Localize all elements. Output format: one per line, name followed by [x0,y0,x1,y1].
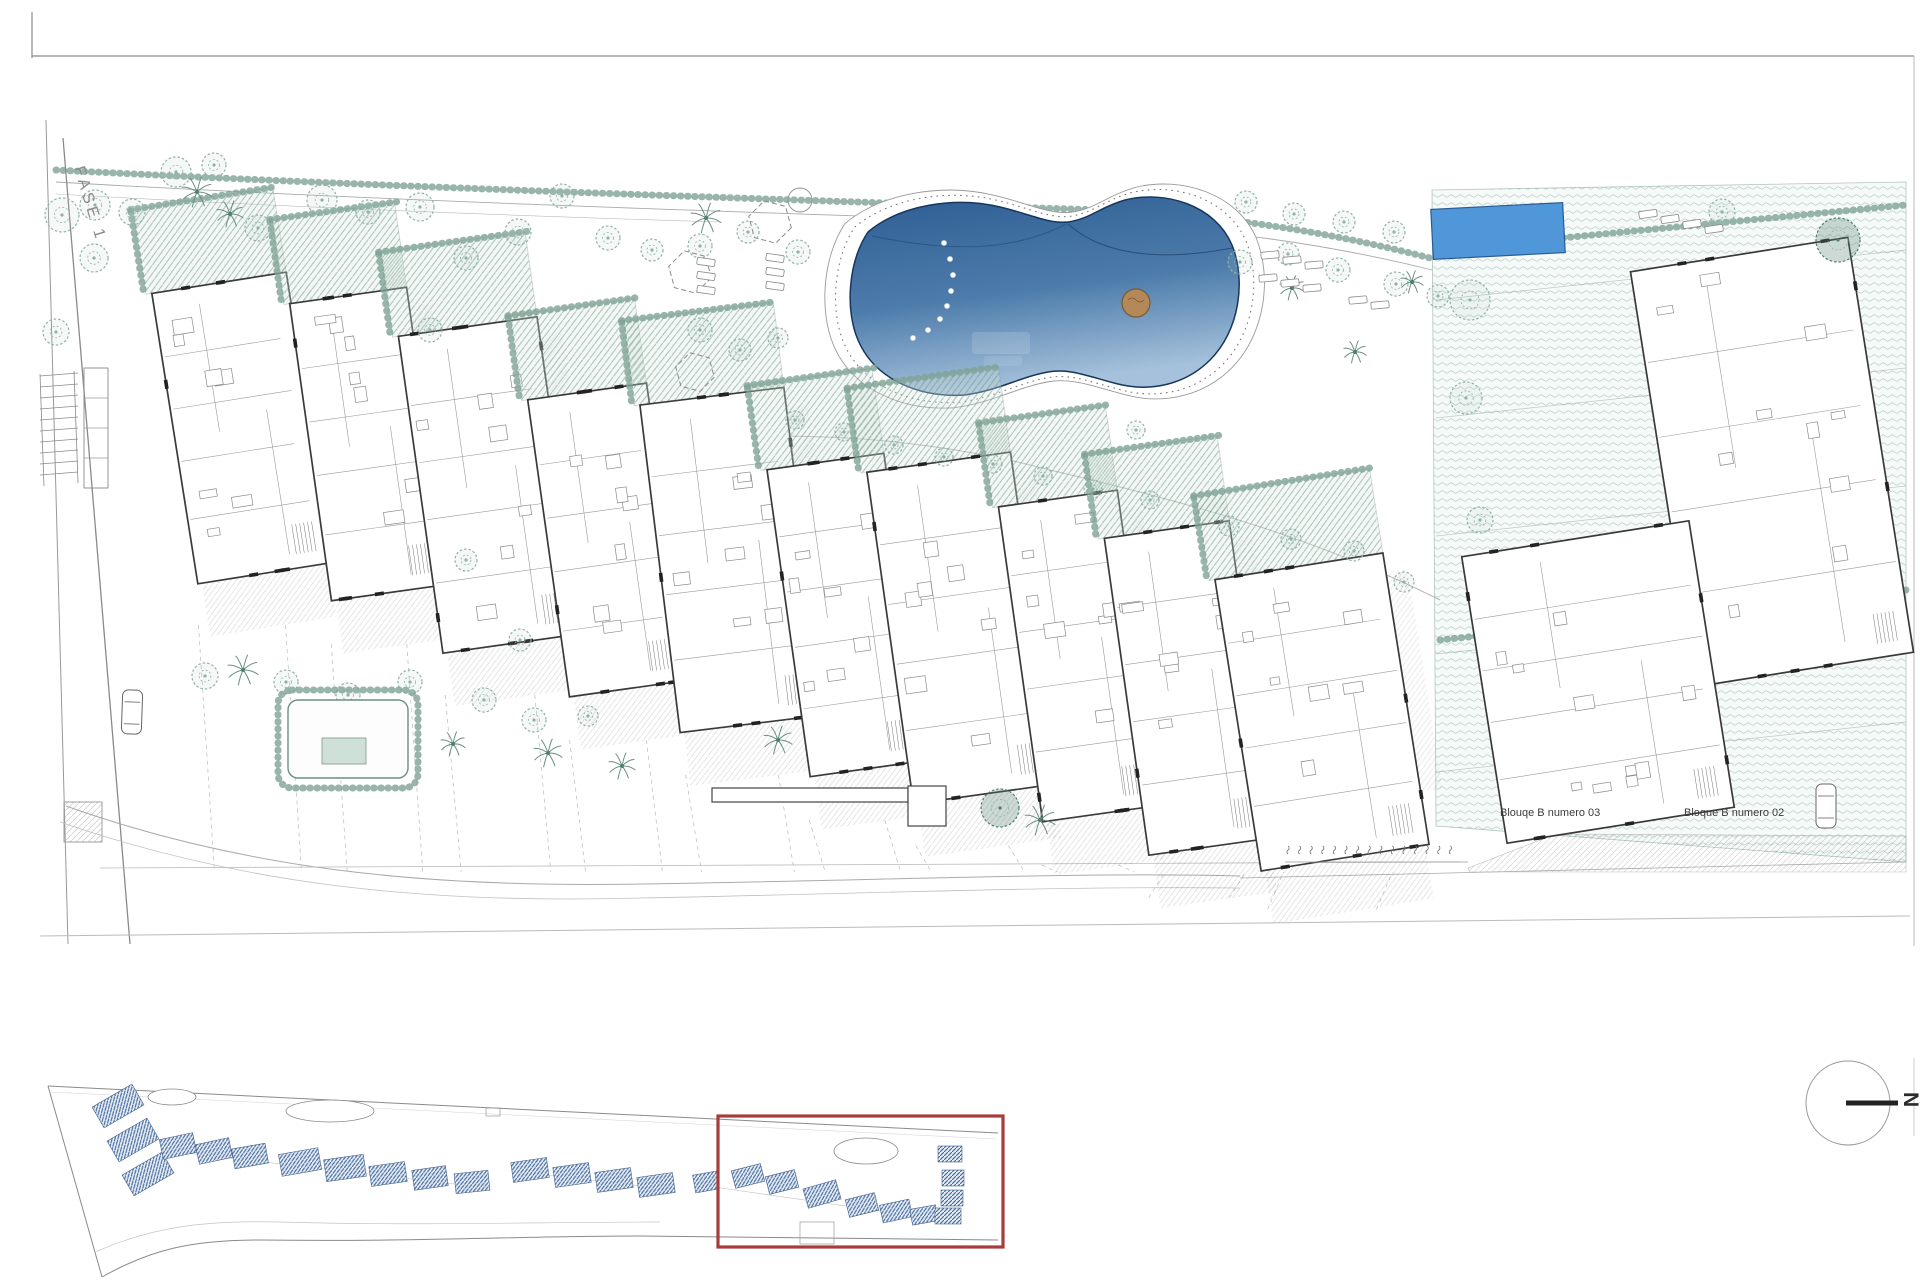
tree-trunk-dot [998,806,1001,809]
car-rear-window [124,724,140,725]
palm-center [241,668,245,672]
keyplan-building-unit [941,1190,963,1206]
sun-lounger [1259,274,1278,283]
stair-step [40,472,78,475]
tree-trunk-dot [418,205,421,208]
furniture-symbol [827,668,846,682]
keyplan-building-unit [803,1180,841,1209]
furniture-symbol [205,369,224,387]
tree-symbol [981,789,1019,827]
tree-symbol [455,549,477,571]
tree-symbol [192,663,218,689]
furniture-symbol [824,587,841,598]
palm-center [546,751,550,755]
palm-center [620,764,624,768]
palm-center [1038,818,1042,822]
tree-symbol [935,448,953,466]
furniture-symbol [795,551,810,560]
palm-symbol [441,732,466,757]
sun-lounger [697,285,716,294]
palm-frond [622,766,629,778]
tree-trunk-dot [842,430,845,433]
tree-symbol [1450,280,1490,320]
tree-trunk-dot [212,163,215,166]
car-windshield [124,702,140,703]
pergola-pavilion [908,786,946,826]
furniture-symbol [172,317,194,335]
keyplan-building-unit [731,1164,764,1189]
tree-trunk-dot [60,213,63,216]
car-body [121,690,143,735]
furniture-symbol [904,676,927,694]
tree-symbol [1235,191,1257,213]
tree-trunk-dot [586,714,589,717]
stair-step [40,450,78,453]
tree-symbol [202,153,226,177]
plot-division-dashed-line [1008,846,1024,873]
tree-symbol [1427,285,1449,307]
palm-symbol [534,739,563,768]
furniture-symbol [733,617,751,627]
palm-center [776,738,780,742]
furniture-symbol [1270,677,1280,686]
pool-island [1122,289,1150,317]
furniture-symbol [416,420,429,431]
tree-symbol [161,157,191,187]
palm-frond [243,663,257,670]
tree-symbol [835,423,853,441]
tree-symbol [1141,491,1159,509]
furniture-symbol [173,334,185,347]
tree-symbol [454,246,478,270]
furniture-symbol [971,733,990,746]
parking-number-tick [1426,846,1428,854]
tree-trunk-dot [1148,498,1151,501]
sun-lounger [1281,279,1300,288]
furniture-symbol [923,541,939,558]
tree-trunk-dot [1238,260,1241,263]
pool-light-dot [950,272,955,277]
furniture-symbol [1308,684,1329,701]
site-plan-drawing: FASE 1 Blouqe B numero 03 Bloque B numer… [0,0,1920,1280]
furniture-symbol [1804,324,1827,341]
pool-water [850,197,1239,395]
furniture-symbol [1512,664,1524,673]
tree-trunk-dot [408,680,411,683]
tree-symbol [578,706,598,726]
tree-trunk-dot [284,680,287,683]
furniture-symbol [1574,695,1595,711]
parking-number-tick [1449,846,1451,854]
tree-trunk-dot [606,236,609,239]
tree-trunk-dot [1720,210,1723,213]
tree-symbol [505,219,531,245]
tree-trunk-dot [366,210,369,213]
tree-symbol [45,198,79,232]
tree-trunk-dot [174,170,177,173]
tree-symbol [984,455,1002,473]
palm-center [195,190,199,194]
furniture-symbol [476,604,497,621]
tree-symbol [1344,541,1364,561]
palm-frond [544,753,548,767]
palm-symbol [1344,341,1367,364]
playground-equipment [322,738,366,764]
palm-frond [238,670,243,685]
sun-lounger [1303,284,1322,293]
tree-trunk-dot [1478,518,1481,521]
tree-trunk-dot [203,674,206,677]
furniture-symbol [1026,595,1039,607]
parking-number-tick [1438,846,1440,854]
tree-symbol [522,708,546,732]
tree-symbol [1034,467,1052,485]
tree-trunk-dot [560,194,563,197]
tree-trunk-dot [698,244,701,247]
tree-trunk-dot [320,198,323,201]
keyplan-building-unit [232,1143,269,1169]
furniture-symbol [1571,782,1582,791]
palm-symbol [228,655,259,686]
tree-trunk-dot [650,248,653,251]
tree-symbol [307,185,337,215]
tree-symbol [356,200,380,224]
stair-rail [74,371,78,483]
palm-frond [691,213,706,218]
furniture-symbol [1242,631,1253,643]
tree-symbol [43,319,69,345]
sun-lounger [1261,251,1280,260]
pool-light-dot [937,316,942,321]
key-plan-layer [48,1084,1003,1277]
tree-symbol [786,240,810,264]
palm-frond [534,748,548,753]
tree-symbol [1326,258,1350,282]
palm-center [451,742,455,746]
furniture-symbol [1496,651,1508,665]
keyplan-building-unit [765,1170,798,1195]
palm-symbol [691,203,722,234]
tree-trunk-dot [1342,220,1345,223]
tree-trunk-dot [532,718,535,721]
keyplan-building-unit [278,1148,321,1177]
furniture-symbol [354,386,368,402]
north-arrow: N [1806,1061,1920,1145]
sun-lounger [697,271,716,280]
tree-trunk-dot [698,328,701,331]
sun-lounger [1349,296,1368,305]
plot-division-dashed-line [646,740,662,872]
keyplan-building-unit [693,1171,720,1193]
tree-trunk-dot [1436,294,1439,297]
tree-trunk-dot [1836,238,1839,241]
stair-step [40,428,78,431]
tree-symbol [737,221,759,243]
sun-lounger [1305,261,1324,270]
furniture-symbol [489,425,508,442]
palm-frond [197,185,211,192]
furniture-symbol [765,608,783,624]
furniture-symbol [1681,685,1696,701]
keyplan-building-unit [195,1138,232,1165]
palm-frond [618,766,622,779]
keyplan-building-unit [369,1162,407,1187]
furniture-symbol [1756,409,1772,420]
tree-trunk-dot [1468,298,1471,301]
furniture-symbol [853,637,870,653]
tree-symbol [1816,218,1860,262]
car-symbol [121,690,143,735]
palm-center [228,212,232,216]
furniture-symbol [207,527,220,536]
pool-light-dot [947,256,952,261]
furniture-symbol [804,681,815,692]
tree-trunk-dot [1292,212,1295,215]
pool-faint-marking [972,332,1030,354]
furniture-symbol [344,336,355,351]
bloque-03-label: Blouqe B numero 03 [1500,807,1600,819]
tree-trunk-dot [1402,580,1405,583]
stair-step [40,439,78,442]
tree-trunk-dot [892,443,895,446]
tree-trunk-dot [256,226,259,229]
keyplan-building-unit [942,1170,964,1186]
furniture-symbol [1829,476,1850,493]
car-symbol [1816,784,1836,828]
palm-frond [548,753,555,766]
furniture-symbol [725,547,745,561]
tree-symbol [688,318,712,342]
tree-trunk-dot [464,558,467,561]
tree-trunk-dot [1392,230,1395,233]
north-label: N [1899,1092,1920,1107]
furniture-symbol [947,565,965,582]
pool-light-dot [941,240,946,245]
palm-frond [706,218,713,232]
furniture-symbol [1095,709,1114,723]
stair-step [40,406,78,409]
palm-symbol [609,753,636,780]
furniture-symbol [615,544,627,561]
tree-symbol [472,688,496,712]
tree-symbol [80,244,108,272]
tree-symbol [1283,203,1305,225]
tree-trunk-dot [1134,428,1137,431]
palm-frond [706,211,720,218]
tree-symbol [1383,221,1405,243]
site-line [40,916,1910,936]
keyplan-pool-outline [286,1100,374,1122]
tree-symbol [1219,516,1239,536]
palm-center [1353,350,1357,354]
tree-trunk-dot [991,462,994,465]
sun-lounger [766,281,785,290]
furniture-symbol [1273,602,1290,613]
tree-symbol [1394,572,1414,592]
keyplan-building-unit [595,1168,633,1193]
palm-frond [228,665,243,670]
pool-light-dot [910,335,915,340]
tree-trunk-dot [92,256,95,259]
utility-structure [64,802,102,842]
keyplan-structure [486,1108,500,1116]
tree-trunk-dot [1394,282,1397,285]
car-body [1816,784,1836,828]
tree-symbol [406,193,434,221]
tree-trunk-dot [130,210,133,213]
tree-symbol [641,239,663,261]
planter-strip [84,368,108,488]
furniture-symbol [605,454,621,469]
tree-trunk-dot [346,693,349,696]
keyplan-building-unit [553,1163,591,1188]
keyplan-building-unit [637,1173,675,1198]
furniture-symbol [673,572,691,586]
tree-trunk-dot [796,250,799,253]
sun-lounger [1371,301,1390,310]
palm-frond [548,746,561,753]
tree-symbol [596,226,620,250]
playground [278,690,418,788]
keyplan-building-unit [454,1170,490,1193]
keyplan-building-unit [511,1158,549,1183]
keyplan-pool-outline [834,1138,898,1164]
furniture-symbol [981,618,996,630]
site-line [46,120,68,944]
tree-trunk-dot [482,698,485,701]
stair-step [40,417,78,420]
tree-symbol [1333,211,1355,233]
tree-trunk-dot [54,330,57,333]
tree-symbol [768,328,788,348]
tree-symbol [245,215,271,241]
palm-center [1410,280,1414,284]
keyplan-structure [800,1222,834,1244]
furniture-symbol [1553,611,1567,626]
furniture-symbol [603,620,622,633]
tree-trunk-dot [793,418,796,421]
furniture-symbol [1158,719,1172,729]
furniture-symbol [917,582,933,598]
furniture-symbol [789,578,801,594]
tree-trunk-dot [1041,474,1044,477]
furniture-symbol [383,510,404,525]
keyplan-pool-outline [148,1089,196,1105]
building-outline [1462,521,1735,843]
tree-symbol [885,436,903,454]
tree-trunk-dot [1464,396,1467,399]
stair-step [40,384,78,387]
tree-symbol [1127,421,1145,439]
furniture-symbol [615,487,628,503]
furniture-symbol [1719,452,1734,465]
palm-frond [243,670,250,684]
furniture-symbol [1728,604,1740,617]
tree-symbol [1450,382,1482,414]
tree-symbol [1228,250,1252,274]
keyplan-building-unit [938,1146,962,1162]
pool-faint-marking [984,356,1022,366]
entrance-stairs [40,371,78,486]
sun-lounger [1283,256,1302,265]
furniture-symbol [1159,652,1179,666]
tree-symbol [1281,529,1301,549]
pool-light-dot [948,288,953,293]
stair-step [40,373,78,376]
furniture-symbol [1044,621,1066,638]
keyplan-left-boundary [48,1086,102,1277]
sun-lounger [766,267,785,276]
keyplan-bottom-boundary [102,1236,998,1277]
furniture-symbol [518,505,531,516]
tree-trunk-dot [1289,537,1292,540]
keyplan-building-unit [412,1166,448,1191]
pergola-wall [712,788,908,802]
furniture-symbol [1022,550,1034,559]
keyplan-building-unit [324,1154,367,1181]
stair-rail [40,374,44,486]
keyplan-building-unit [159,1133,196,1160]
sun-lounger [766,253,785,262]
keyplan-building-unit [879,1199,912,1223]
plot-division-dashed-line [686,775,702,872]
plot-division-dashed-line [570,740,586,872]
tree-symbol [550,184,574,208]
tree-symbol [688,234,712,258]
apartment-building [1460,519,1737,846]
furniture-symbol [1301,760,1316,777]
plot-division-dashed-line [1118,865,1134,872]
tree-trunk-dot [942,455,945,458]
tree-trunk-dot [1286,252,1289,255]
palm-frond [701,218,706,233]
bloque-02-label: Bloque B numero 02 [1684,807,1784,819]
tree-symbol [1084,480,1102,498]
plot-division-dashed-line [445,695,461,872]
tree-symbol [119,199,145,225]
plot-division-dashed-line [198,625,214,872]
tree-trunk-dot [1091,487,1094,490]
furniture-symbol [1626,775,1639,787]
stair-step [40,461,78,464]
tree-symbol [729,339,751,361]
bloque-roof-pool [1431,203,1565,260]
tree-symbol [418,318,442,342]
stair-step [40,395,78,398]
tree-trunk-dot [776,336,779,339]
tree-trunk-dot [1227,524,1230,527]
keyplan-building-unit [845,1193,878,1218]
furniture-symbol [477,393,493,409]
furniture-symbol [1635,761,1651,779]
architectural-site-plan-page: FASE 1 Blouqe B numero 03 Bloque B numer… [0,0,1920,1280]
tree-symbol [1467,507,1493,533]
tree-trunk-dot [1352,549,1355,552]
tree-trunk-dot [738,348,741,351]
tree-trunk-dot [518,638,521,641]
tree-trunk-dot [516,230,519,233]
furniture-symbol [570,455,583,467]
tree-trunk-dot [1336,268,1339,271]
tree-trunk-dot [746,230,749,233]
tree-trunk-dot [464,256,467,259]
furniture-symbol [349,372,361,385]
tree-trunk-dot [428,328,431,331]
keyplan-building-unit [107,1118,159,1162]
furniture-symbol [1806,422,1819,439]
furniture-symbol [593,605,610,622]
sun-lounger [697,257,716,266]
